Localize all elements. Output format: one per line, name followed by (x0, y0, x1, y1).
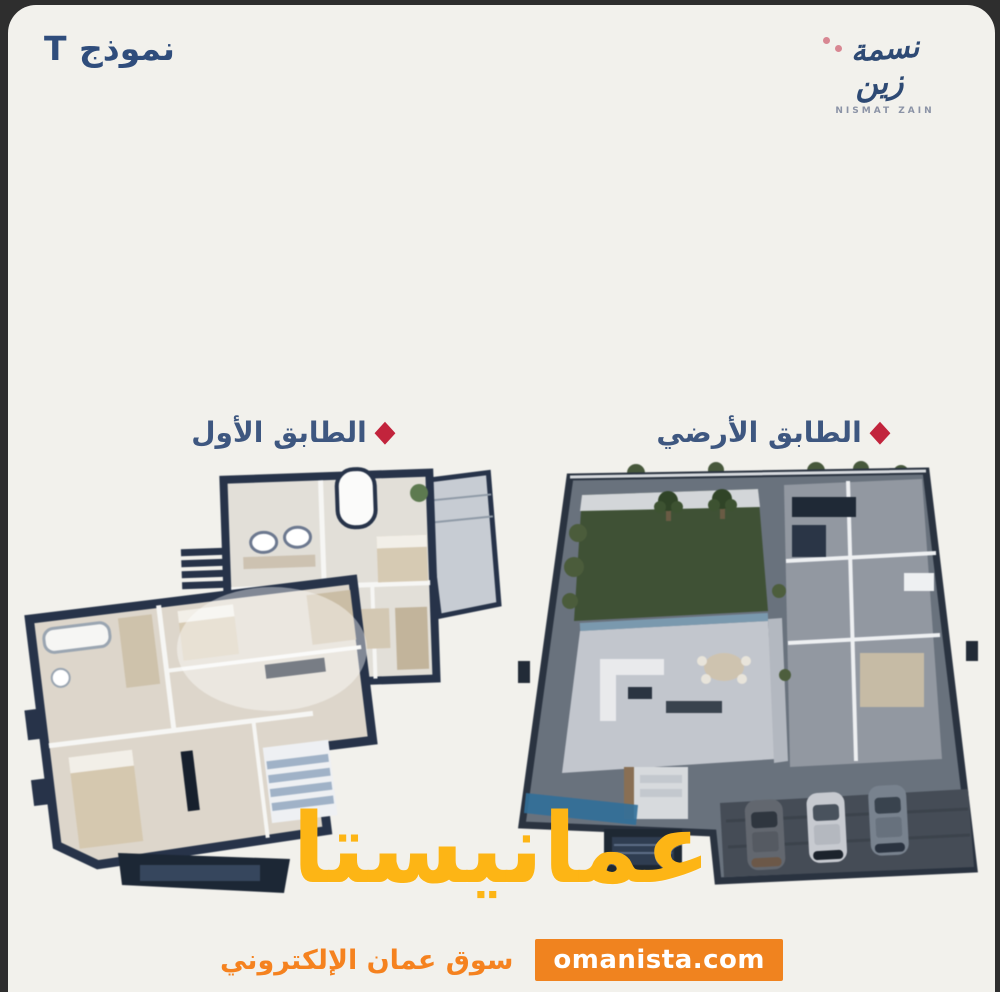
model-label: نموذج T (44, 29, 175, 68)
watermark-brand: عمانيستا (8, 793, 995, 905)
kitchen-counter (792, 497, 856, 517)
coffee-table (628, 687, 652, 699)
bush-icon (569, 524, 587, 542)
bush-icon (562, 593, 578, 609)
sofa (600, 675, 616, 721)
sink (284, 527, 311, 548)
ground-floor-label-text: الطابق الأرضي (656, 416, 861, 449)
diamond-icon: ◆ (869, 417, 890, 447)
bush-icon (564, 557, 584, 577)
diamond-icon: ◆ (374, 417, 395, 447)
sofa (600, 659, 664, 675)
logo-dot-icon (835, 45, 842, 52)
poster-card: نموذج T نسمة زين NISMAT ZAIN الطابق الأو… (8, 5, 995, 992)
garden-area (562, 489, 768, 621)
watermark-row: سوق عمان الإلكتروني omanista.com (8, 939, 995, 981)
arched-window (336, 469, 376, 528)
brand-logo: نسمة زين NISMAT ZAIN (805, 35, 965, 116)
sofa (666, 701, 722, 713)
sink (250, 532, 277, 553)
ground-floor-label: الطابق الأرضي ◆ (638, 410, 908, 454)
light-glow (177, 587, 367, 711)
logo-dot-icon (823, 37, 830, 44)
first-floor-label: الطابق الأول ◆ (158, 410, 428, 454)
living-room (562, 617, 776, 773)
logo-latin-caption: NISMAT ZAIN (805, 106, 965, 116)
watermark-domain-badge: omanista.com (535, 939, 783, 981)
bathroom-fixture (904, 573, 934, 591)
bedroom-bed (860, 653, 924, 707)
watermark-tagline: سوق عمان الإلكتروني (220, 945, 513, 976)
sink (51, 668, 71, 688)
right-wing (772, 479, 942, 767)
logo-calligraphy: نسمة زين (805, 35, 965, 98)
first-floor-label-text: الطابق الأول (191, 416, 367, 449)
kitchen-island (792, 525, 826, 557)
plant-icon (779, 669, 791, 681)
plant-icon (772, 584, 786, 598)
